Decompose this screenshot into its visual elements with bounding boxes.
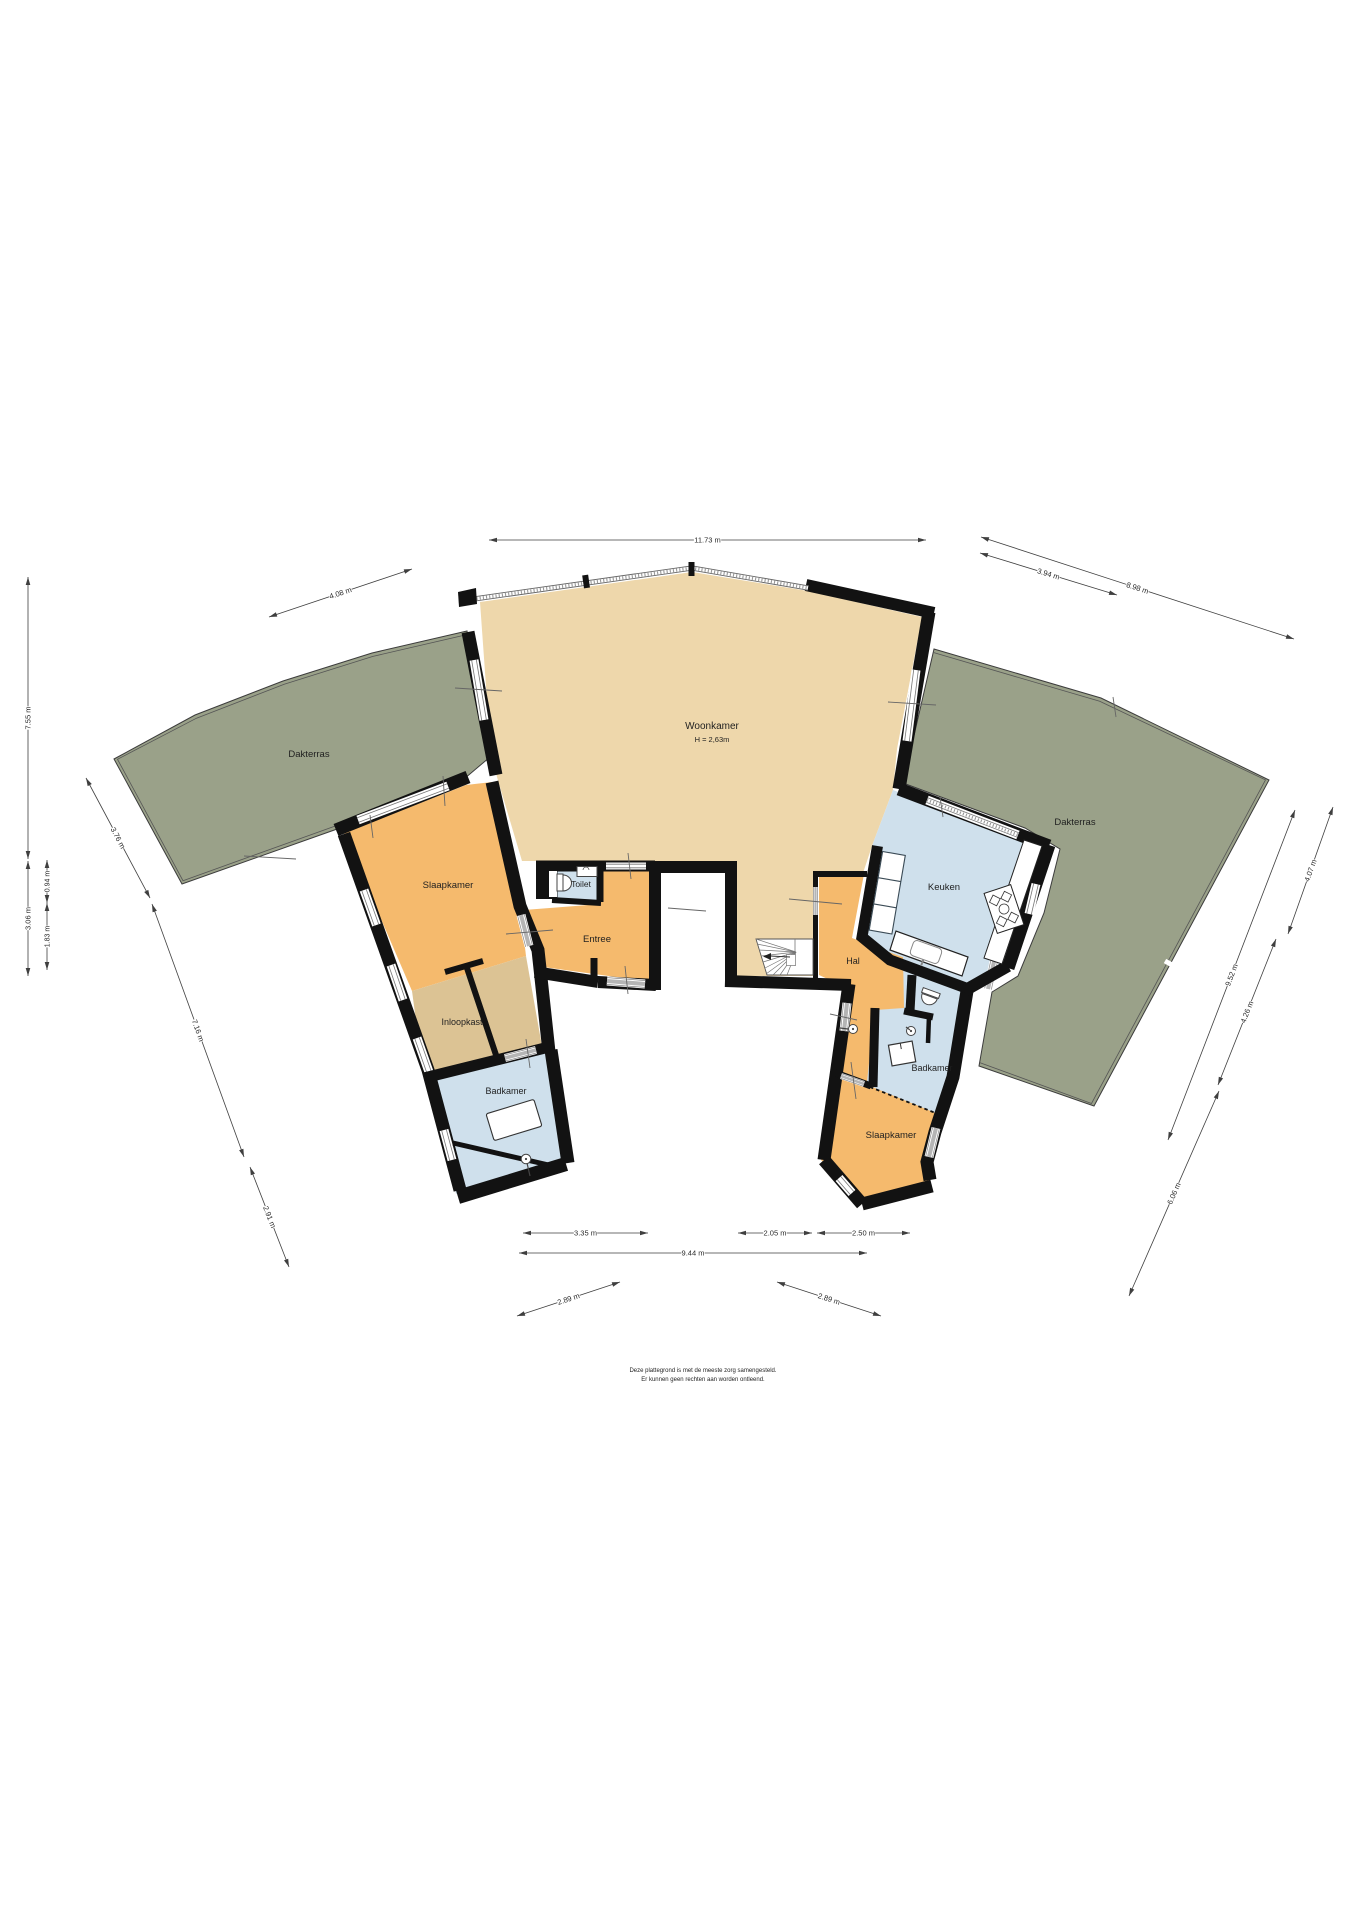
svg-text:Dakterras: Dakterras [1054, 817, 1095, 828]
svg-text:Slaapkamer: Slaapkamer [866, 1130, 917, 1141]
svg-text:2.50 m: 2.50 m [852, 1229, 875, 1238]
svg-text:Deze plattegrond is met de mee: Deze plattegrond is met de meeste zorg s… [629, 1368, 776, 1374]
svg-text:Slaapkamer: Slaapkamer [423, 880, 474, 891]
svg-text:Badkamer: Badkamer [485, 1086, 526, 1096]
svg-text:Entree: Entree [583, 934, 611, 945]
svg-text:1.83 m: 1.83 m [44, 926, 51, 948]
svg-text:Inloopkast: Inloopkast [441, 1017, 483, 1027]
svg-text:Keuken: Keuken [928, 882, 960, 893]
svg-text:9.44 m: 9.44 m [682, 1249, 705, 1258]
svg-text:Badkamer: Badkamer [911, 1063, 952, 1073]
svg-text:Hal: Hal [846, 956, 860, 966]
svg-text:H = 2,63m: H = 2,63m [695, 735, 730, 744]
svg-text:11.73 m: 11.73 m [694, 536, 721, 545]
svg-text:2.05 m: 2.05 m [764, 1229, 787, 1238]
svg-text:Woonkamer: Woonkamer [685, 721, 739, 732]
svg-text:3.06 m: 3.06 m [24, 907, 33, 930]
svg-text:0.94 m: 0.94 m [44, 871, 51, 893]
svg-text:7.55 m: 7.55 m [24, 707, 33, 730]
svg-text:Dakterras: Dakterras [288, 749, 329, 760]
svg-text:Toilet: Toilet [571, 879, 591, 889]
svg-text:3.35 m: 3.35 m [574, 1229, 597, 1238]
svg-text:Er kunnen geen rechten aan wor: Er kunnen geen rechten aan worden ontlee… [641, 1377, 765, 1383]
